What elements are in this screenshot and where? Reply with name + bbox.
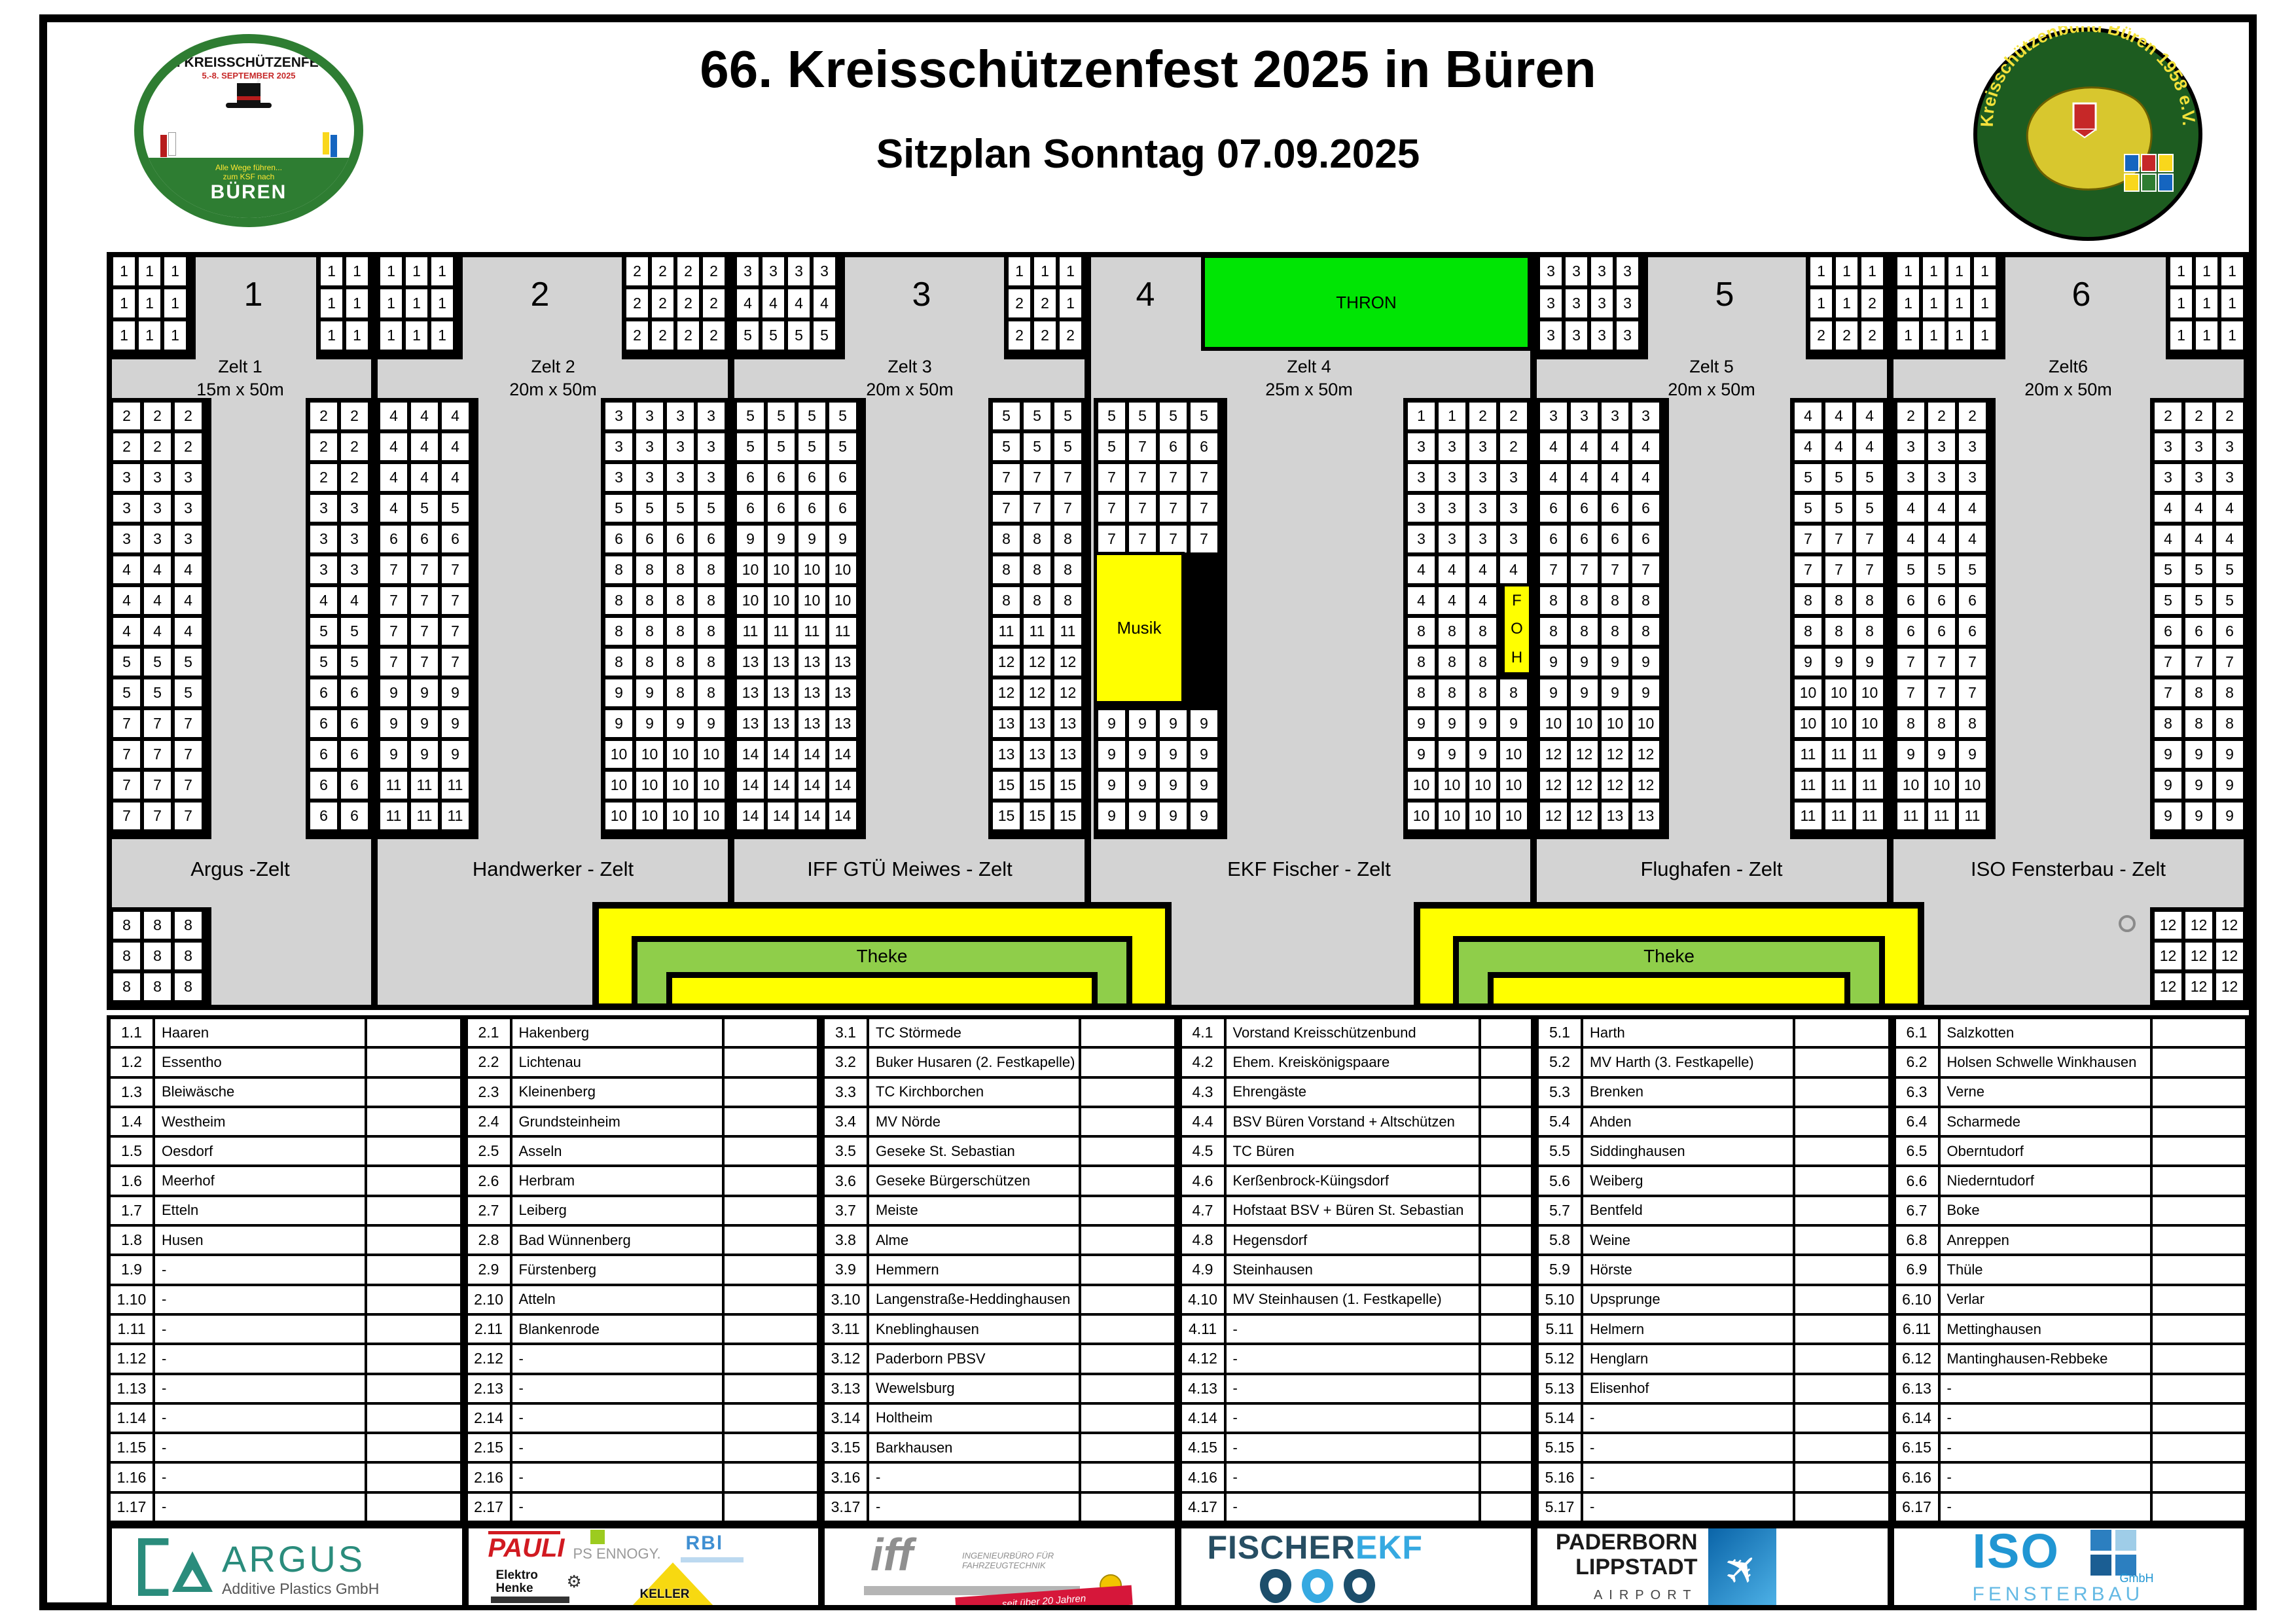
- seat-cell: 6: [308, 739, 339, 770]
- tent-boundary-line: [728, 252, 734, 1010]
- legend-row-number: 6.17: [1896, 1494, 1938, 1521]
- seat-cell: 1: [404, 287, 429, 319]
- seat-cell: 4: [1895, 493, 1926, 524]
- legend-row: 2.2Lichtenau: [468, 1049, 817, 1075]
- seat-cell: 4: [440, 462, 471, 493]
- seat-cell: 8: [1022, 585, 1052, 616]
- seat-cell: 13: [797, 647, 827, 677]
- seat-cell: 7: [111, 739, 142, 770]
- seat-cell: 3: [111, 524, 142, 554]
- legend-row: 5.17-: [1539, 1494, 1888, 1521]
- window-icon: [2090, 1530, 2136, 1576]
- airplane-icon: ✈: [1708, 1528, 1776, 1605]
- seat-cell: 4: [1630, 431, 1661, 462]
- seat-cell: 11: [735, 616, 766, 647]
- seat-cell: 3: [339, 493, 370, 524]
- seat-cell: 9: [1630, 677, 1661, 708]
- legend-row-empty: [725, 1434, 817, 1461]
- seat-cell: 4: [1406, 585, 1437, 616]
- seat-cell: 1: [1437, 401, 1467, 431]
- page-title: 66. Kreisschützenfest 2025 in Büren: [393, 39, 1903, 99]
- legend-row-number: 2.3: [468, 1079, 510, 1106]
- seat-cell: 9: [1793, 647, 1823, 677]
- tent-sponsor-label: IFF GTÜ Meiwes - Zelt: [772, 857, 1047, 881]
- theke-box: Theke: [1414, 902, 1924, 1010]
- legend-row-empty: [2153, 1138, 2246, 1164]
- legend-row-name: -: [1227, 1375, 1479, 1402]
- seat-cell: 1: [2219, 287, 2245, 319]
- seat-cell: 3: [1538, 255, 1564, 287]
- legend-row-name: Harth: [1583, 1019, 1793, 1046]
- seat-cell: 5: [111, 677, 142, 708]
- legend-row: 2.6Herbram: [468, 1167, 817, 1194]
- seat-cell: 8: [1538, 585, 1569, 616]
- seat-cell: 1: [1972, 287, 1998, 319]
- seat-cell: 9: [2153, 801, 2183, 831]
- seat-cell: 4: [1569, 462, 1600, 493]
- legend-row-empty: [1795, 1108, 1888, 1135]
- legend-row-name: -: [155, 1256, 365, 1283]
- legend-row-number: 3.12: [825, 1345, 867, 1372]
- seat-cell: 5: [766, 431, 797, 462]
- seat-cell: 1: [1808, 287, 1834, 319]
- legend-row: 5.14-: [1539, 1405, 1888, 1432]
- seat-cell: 5: [1096, 401, 1127, 431]
- seat-cell: 1: [319, 287, 344, 319]
- seat-cell: 10: [1498, 801, 1529, 831]
- seat-cell: 6: [665, 524, 696, 554]
- seat-cell: 2: [1859, 287, 1885, 319]
- seat-cell: 12: [1052, 647, 1083, 677]
- seat-cell: 15: [1022, 770, 1052, 801]
- seat-cell: 5: [696, 493, 726, 524]
- seat-cell: 7: [378, 616, 409, 647]
- legend-row-name: Siddinghausen: [1583, 1138, 1793, 1164]
- seat-cell: 1: [1946, 255, 1972, 287]
- legend-row-name: MV Steinhausen (1. Festkapelle): [1227, 1286, 1479, 1313]
- seat-cell: 6: [1630, 524, 1661, 554]
- seat-cell: 6: [1158, 431, 1189, 462]
- legend-row-empty: [1081, 1079, 1174, 1106]
- seat-cell: 7: [1895, 647, 1926, 677]
- legend-row-empty: [367, 1494, 460, 1521]
- seat-cell: 9: [603, 708, 634, 739]
- seat-cell: 7: [1127, 524, 1158, 554]
- seat-cell: 8: [1052, 524, 1083, 554]
- seat-cell: 7: [1096, 493, 1127, 524]
- legend-row: 4.1Vorstand Kreisschützenbund: [1182, 1019, 1532, 1046]
- seat-cell: 11: [1926, 801, 1957, 831]
- tent-name-label: Zelt 5: [1613, 357, 1810, 377]
- seat-cell: 9: [2183, 801, 2214, 831]
- legend-row-empty: [2153, 1256, 2246, 1283]
- seat-cell: 9: [797, 524, 827, 554]
- seat-cell: 14: [766, 801, 797, 831]
- seat-cell: 3: [696, 431, 726, 462]
- seat-cell: 2: [1834, 319, 1859, 352]
- legend-row: 2.16-: [468, 1464, 817, 1490]
- theke-box: Theke: [592, 902, 1172, 1010]
- seat-cell: 3: [1564, 319, 1589, 352]
- top-seat-cluster: 333344445555: [732, 253, 845, 359]
- seat-cell: 4: [378, 401, 409, 431]
- seat-cell: 10: [1630, 708, 1661, 739]
- seat-cell: 8: [696, 647, 726, 677]
- seat-cell: 1: [1921, 255, 1946, 287]
- legend-row-empty: [2153, 1049, 2246, 1075]
- seat-cell: 6: [735, 462, 766, 493]
- seat-cell: 1: [1972, 255, 1998, 287]
- legend-row-number: 1.11: [111, 1316, 152, 1343]
- seat-cell: 14: [827, 801, 858, 831]
- seat-cell: 3: [1589, 287, 1615, 319]
- legend-row: 4.7Hofstaat BSV + Büren St. Sebastian: [1182, 1197, 1532, 1224]
- main-seat-cluster: 2222223333333334444444445555557777777777…: [109, 398, 211, 839]
- legend-table: 3.1TC Störmede3.2Buker Husaren (2. Festk…: [821, 1015, 1178, 1525]
- seat-cell: 10: [797, 554, 827, 585]
- seat-cell: 8: [634, 616, 665, 647]
- legend-row-name: Hakenberg: [512, 1019, 722, 1046]
- seat-cell: 3: [339, 524, 370, 554]
- seat-cell: 5: [827, 401, 858, 431]
- keller-text: KELLER: [640, 1587, 690, 1602]
- iso-name-text: ISO: [1973, 1528, 2060, 1579]
- seat-cell: 5: [409, 493, 440, 524]
- seat-cell: 5: [142, 647, 173, 677]
- seat-cell: 1: [429, 255, 455, 287]
- badge-town-text: BÜREN: [143, 181, 354, 204]
- tent-sponsor-label: Argus -Zelt: [103, 857, 378, 881]
- seat-cell: 2: [308, 401, 339, 431]
- seat-cell: 9: [1096, 770, 1127, 801]
- seat-cell: 4: [111, 585, 142, 616]
- legend-row-number: 1.8: [111, 1227, 152, 1254]
- seat-cell: 9: [1127, 708, 1158, 739]
- top-seat-cluster: 111111: [316, 253, 378, 359]
- legend-row-name: -: [1583, 1464, 1793, 1490]
- main-seat-cluster: 4444445555557777778888889991010101010101…: [1790, 398, 1893, 839]
- legend-table: 1.1Haaren1.2Essentho1.3Bleiwäsche1.4West…: [107, 1015, 464, 1525]
- legend-row-empty: [2153, 1227, 2246, 1254]
- page-subtitle: Sitzplan Sonntag 07.09.2025: [393, 131, 1903, 177]
- legend-row-empty: [1795, 1316, 1888, 1343]
- seat-cell: 2: [1926, 401, 1957, 431]
- legend-row-empty: [2153, 1405, 2246, 1432]
- legend-row-number: 6.12: [1896, 1345, 1938, 1372]
- seat-cell: 9: [1158, 801, 1189, 831]
- legend-row-number: 1.16: [111, 1464, 152, 1490]
- legend-row: 6.3Verne: [1896, 1079, 2246, 1106]
- seat-cell: 7: [1052, 462, 1083, 493]
- legend-row-name: -: [155, 1464, 365, 1490]
- seat-cell: 8: [1895, 708, 1926, 739]
- zone-number: 3: [882, 275, 961, 314]
- seat-cell: 2: [624, 255, 650, 287]
- seat-cell: 5: [173, 677, 204, 708]
- legend-row: 3.17-: [825, 1494, 1174, 1521]
- seat-cell: 5: [2214, 554, 2245, 585]
- seat-cell: 4: [1569, 431, 1600, 462]
- rbb-bar: [681, 1557, 744, 1562]
- sponsor-iso-logo: ISO GmbH FENSTERBAU: [1894, 1528, 2244, 1605]
- legend-row-empty: [1081, 1167, 1174, 1194]
- legend-row-name: -: [155, 1494, 365, 1521]
- seat-cell: 11: [440, 801, 471, 831]
- seat-cell: 8: [1793, 616, 1823, 647]
- legend-row-number: 4.13: [1182, 1375, 1224, 1402]
- fischer-ekf-text: FISCHEREKF: [1208, 1528, 1423, 1566]
- seat-cell: 11: [440, 770, 471, 801]
- legend-row-name: Fürstenberg: [512, 1256, 722, 1283]
- seat-cell: 7: [111, 708, 142, 739]
- seat-cell: 11: [1022, 616, 1052, 647]
- seat-cell: 3: [1406, 524, 1437, 554]
- seat-cell: 5: [1793, 462, 1823, 493]
- seat-cell: 3: [1498, 493, 1529, 524]
- legend-row-number: 6.14: [1896, 1405, 1938, 1432]
- legend-row-empty: [2153, 1316, 2246, 1343]
- legend-row: 6.12Mantinghausen-Rebbeke: [1896, 1345, 2246, 1372]
- seat-cell: 8: [1437, 616, 1467, 647]
- seat-cell: 3: [1467, 524, 1498, 554]
- seat-cell: 9: [603, 677, 634, 708]
- seat-cell: 10: [1854, 708, 1885, 739]
- legend-row-empty: [1481, 1464, 1532, 1490]
- seat-cell: 10: [634, 770, 665, 801]
- legend-row-empty: [367, 1464, 460, 1490]
- seat-cell: 2: [1498, 431, 1529, 462]
- seat-cell: 7: [1793, 524, 1823, 554]
- seat-cell: 8: [665, 647, 696, 677]
- theke-counter-inner: [1488, 972, 1850, 1010]
- legend-row: 3.7Meiste: [825, 1197, 1174, 1224]
- legend-row-number: 6.9: [1896, 1256, 1938, 1283]
- seat-cell: 1: [1058, 287, 1083, 319]
- seat-cell: 9: [2214, 739, 2245, 770]
- seat-cell: 3: [1564, 255, 1589, 287]
- legend-row-name: -: [155, 1405, 365, 1432]
- seat-cell: 9: [1569, 677, 1600, 708]
- seat-cell: 3: [1437, 431, 1467, 462]
- seat-cell: 7: [1957, 677, 1988, 708]
- seat-cell: 6: [378, 524, 409, 554]
- seat-cell: 9: [2183, 739, 2214, 770]
- legend-row-number: 2.16: [468, 1464, 510, 1490]
- seat-cell: 3: [1538, 401, 1569, 431]
- seat-cell: 12: [1569, 739, 1600, 770]
- seat-cell: 8: [2183, 677, 2214, 708]
- seat-cell: 3: [1538, 287, 1564, 319]
- seat-cell: 3: [1467, 431, 1498, 462]
- seat-cell: 4: [1437, 585, 1467, 616]
- seat-cell: 10: [603, 739, 634, 770]
- seat-cell: 4: [1957, 524, 1988, 554]
- seat-cell: 8: [1823, 585, 1854, 616]
- legend-table: 6.1Salzkotten6.2Holsen Schwelle Winkhaus…: [1892, 1015, 2250, 1525]
- seat-cell: 3: [1467, 462, 1498, 493]
- legend-row-number: 5.7: [1539, 1197, 1581, 1224]
- seat-cell: 12: [1538, 801, 1569, 831]
- legend-row-empty: [2153, 1286, 2246, 1313]
- seat-cell: 8: [173, 941, 204, 971]
- legend-row-name: Kerßenbrock-Küingsdorf: [1227, 1167, 1479, 1194]
- seat-cell: 4: [1467, 554, 1498, 585]
- seat-cell: 3: [1600, 401, 1630, 431]
- seat-cell: 13: [1052, 739, 1083, 770]
- legend-row-empty: [2153, 1375, 2246, 1402]
- seat-cell: 9: [1127, 770, 1158, 801]
- seat-cell: 10: [1793, 677, 1823, 708]
- seat-cell: 8: [1022, 554, 1052, 585]
- argus-name-text: ARGUS: [222, 1538, 379, 1580]
- seat-cell: 5: [1854, 493, 1885, 524]
- legend-row-number: 2.1: [468, 1019, 510, 1046]
- legend-row: 5.8Weine: [1539, 1227, 1888, 1254]
- legend-row: 4.9Steinhausen: [1182, 1256, 1532, 1283]
- seat-cell: 5: [2153, 554, 2183, 585]
- legend-row: 2.8Bad Wünnenberg: [468, 1227, 817, 1254]
- seat-cell: 8: [696, 616, 726, 647]
- seat-cell: 8: [1467, 677, 1498, 708]
- tent-sponsor-label: Flughafen - Zelt: [1574, 857, 1849, 881]
- seat-cell: 8: [1823, 616, 1854, 647]
- legend-row-number: 2.17: [468, 1494, 510, 1521]
- top-seat-cluster: 111112222: [1806, 253, 1893, 359]
- seat-cell: 2: [1007, 319, 1032, 352]
- seat-cell: 7: [378, 647, 409, 677]
- legend-row: 6.5Oberntudorf: [1896, 1138, 2246, 1164]
- seat-cell: 6: [308, 677, 339, 708]
- seat-cell: 5: [991, 431, 1022, 462]
- seat-cell: 8: [1854, 616, 1885, 647]
- legend-row-name: -: [155, 1345, 365, 1372]
- argus-sub-text: Additive Plastics GmbH: [222, 1580, 379, 1598]
- seat-cell: 14: [797, 739, 827, 770]
- seat-cell: 4: [339, 585, 370, 616]
- seat-cell: 6: [1926, 585, 1957, 616]
- legend-row-name: BSV Büren Vorstand + Altschützen: [1227, 1108, 1479, 1135]
- legend-row: 2.13-: [468, 1375, 817, 1402]
- seat-cell: 7: [1926, 647, 1957, 677]
- legend-row-name: -: [869, 1464, 1079, 1490]
- legend-row-number: 5.6: [1539, 1167, 1581, 1194]
- seat-cell: 9: [1437, 708, 1467, 739]
- seat-cell: 7: [1096, 462, 1127, 493]
- tent-name-label: Zelt 3: [812, 357, 1008, 377]
- seat-cell: 3: [1957, 431, 1988, 462]
- legend-row-number: 1.3: [111, 1079, 152, 1106]
- seat-cell: 2: [701, 319, 726, 352]
- seat-cell: 8: [1406, 647, 1437, 677]
- legend-row-empty: [1481, 1049, 1532, 1075]
- seat-cell: 3: [1498, 462, 1529, 493]
- legend-row-name: Hemmern: [869, 1256, 1079, 1283]
- seat-cell: 7: [1895, 677, 1926, 708]
- legend-row-empty: [2153, 1434, 2246, 1461]
- legend-row: 4.12-: [1182, 1345, 1532, 1372]
- legend-row: 3.8Alme: [825, 1227, 1174, 1254]
- legend-row-number: 3.6: [825, 1167, 867, 1194]
- legend-row: 5.15-: [1539, 1434, 1888, 1461]
- legend-row-empty: [1081, 1316, 1174, 1343]
- seat-cell: 9: [1630, 647, 1661, 677]
- seat-cell: 1: [1921, 319, 1946, 352]
- seat-cell: 7: [440, 585, 471, 616]
- legend-row-number: 4.3: [1182, 1079, 1224, 1106]
- seat-cell: 4: [2214, 493, 2245, 524]
- seat-cell: 6: [1538, 493, 1569, 524]
- legend-row-name: Steinhausen: [1227, 1256, 1479, 1283]
- seat-cell: 8: [1406, 616, 1437, 647]
- legend-row-number: 1.14: [111, 1405, 152, 1432]
- legend-row: 1.14-: [111, 1405, 460, 1432]
- legend-row-empty: [2153, 1345, 2246, 1372]
- legend-row-empty: [725, 1464, 817, 1490]
- seat-cell: 9: [1406, 708, 1437, 739]
- legend-table: 5.1Harth5.2MV Harth (3. Festkapelle)5.3B…: [1535, 1015, 1892, 1525]
- legend-row-name: Elisenhof: [1583, 1375, 1793, 1402]
- legend-row-empty: [1081, 1256, 1174, 1283]
- seat-cell: 5: [665, 493, 696, 524]
- legend-row: 1.7Etteln: [111, 1197, 460, 1224]
- seat-cell: 5: [735, 319, 761, 352]
- seat-cell: 13: [1600, 801, 1630, 831]
- legend-row-name: -: [512, 1434, 722, 1461]
- hexagon-rings-icon: [1260, 1569, 1375, 1603]
- seat-cell: 7: [1127, 493, 1158, 524]
- seat-cell: 7: [440, 616, 471, 647]
- seat-cell: 5: [339, 647, 370, 677]
- seat-cell: 4: [378, 462, 409, 493]
- legend-row: 5.4Ahden: [1539, 1108, 1888, 1135]
- seat-cell: 3: [111, 462, 142, 493]
- seat-cell: 6: [440, 524, 471, 554]
- legend-row-empty: [1081, 1227, 1174, 1254]
- legend-row-name: -: [1583, 1494, 1793, 1521]
- seat-cell: 10: [634, 739, 665, 770]
- seat-cell: 6: [1957, 616, 1988, 647]
- seat-cell: 3: [308, 493, 339, 524]
- seat-cell: 2: [1032, 319, 1058, 352]
- legend-row-empty: [367, 1049, 460, 1075]
- legend-row-empty: [1481, 1494, 1532, 1521]
- emblem-graphic: Kreisschützenbund Büren 1958 e.V.: [1970, 26, 2206, 242]
- seat-cell: 8: [142, 910, 173, 941]
- legend-row-name: Upsprunge: [1583, 1286, 1793, 1313]
- seat-cell: 12: [991, 677, 1022, 708]
- seat-cell: 3: [2153, 462, 2183, 493]
- seat-cell: 4: [812, 287, 837, 319]
- seat-cell: 8: [696, 677, 726, 708]
- legend-row-name: Verne: [1941, 1079, 2150, 1106]
- seat-cell: 3: [173, 462, 204, 493]
- tent-name-label: Zelt 4: [1211, 357, 1407, 377]
- seat-cell: 2: [701, 287, 726, 319]
- legend-row-name: Verlar: [1941, 1286, 2150, 1313]
- legend-row-empty: [1081, 1138, 1174, 1164]
- seat-cell: 1: [111, 287, 137, 319]
- seat-cell: 5: [308, 647, 339, 677]
- seat-cell: 5: [1127, 401, 1158, 431]
- legend-table: 2.1Hakenberg2.2Lichtenau2.3Kleinenberg2.…: [464, 1015, 821, 1525]
- seat-cell: 9: [1096, 801, 1127, 831]
- seat-cell: 5: [1189, 401, 1219, 431]
- legend-row-name: Vorstand Kreisschützenbund: [1227, 1019, 1479, 1046]
- seat-cell: 3: [1406, 493, 1437, 524]
- legend-row: 3.6Geseke Bürgerschützen: [825, 1167, 1174, 1194]
- legend-row-empty: [1795, 1197, 1888, 1224]
- seat-cell: 7: [1189, 524, 1219, 554]
